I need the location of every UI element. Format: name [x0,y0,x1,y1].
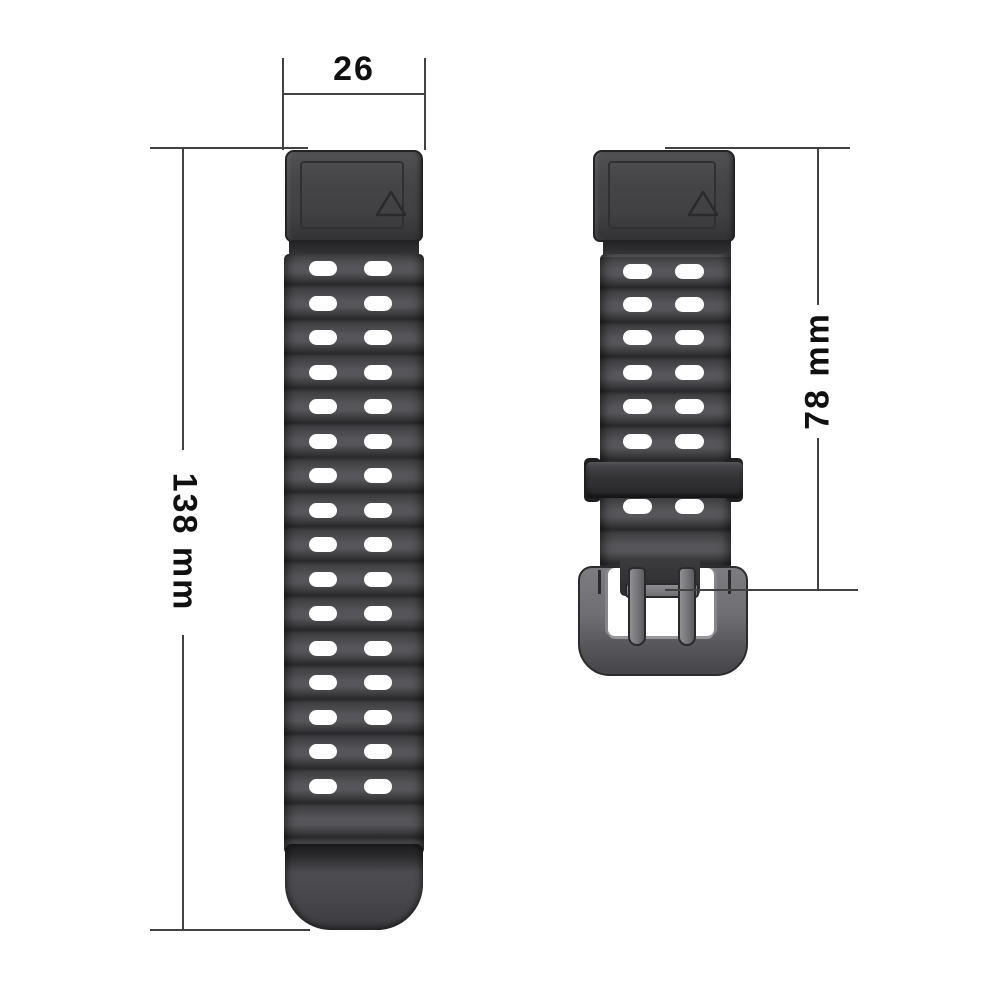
strap-hole [309,744,337,759]
long-strap-length-label: 138 mm [165,473,204,612]
strap-hole [364,399,392,414]
short-strap-dimension-line-lower [817,438,819,591]
short-strap-lug-end [593,150,735,242]
strap-hole [675,297,704,312]
strap-hole [309,434,337,449]
product-diagram: 26 138 mm 78 mm [0,0,1000,1000]
short-strap [574,150,754,685]
strap-hole [364,744,392,759]
strap-hole [675,330,704,345]
short-strap-body [600,254,731,576]
strap-hole [364,296,392,311]
short-strap-length-label: 78 mm [799,312,838,430]
strap-hole [623,399,652,414]
strap-hole [364,710,392,725]
short-strap-extension-line-top [665,147,850,149]
strap-hole [675,365,704,380]
strap-hole [364,537,392,552]
strap-hole [364,503,392,518]
strap-hole [364,365,392,380]
strap-hole [309,503,337,518]
strap-hole [623,499,652,514]
strap-hole [309,399,337,414]
strap-hole [364,468,392,483]
spring-bar-pin-left [598,570,601,594]
strap-hole [309,779,337,794]
strap-hole [364,779,392,794]
long-strap-body [284,254,424,854]
strap-hole [623,297,652,312]
long-strap-dimension-line-upper [182,147,184,450]
width-dimension-line [283,93,425,95]
strap-hole [623,330,652,345]
short-strap-extension-line-bottom [665,589,858,591]
strap-hole [309,365,337,380]
strap-hole [309,330,337,345]
strap-hole [364,572,392,587]
strap-hole [309,537,337,552]
strap-hole [364,261,392,276]
triangle-marker-icon [373,188,409,220]
strap-hole [364,641,392,656]
strap-hole [309,261,337,276]
buckle-prong-left [628,567,646,646]
buckle-prong-right [678,567,696,646]
strap-hole [309,606,337,621]
strap-hole [309,675,337,690]
strap-hole [309,468,337,483]
long-strap-extension-line-top [150,147,308,149]
strap-hole [309,710,337,725]
strap-hole [309,641,337,656]
strap-hole [623,264,652,279]
strap-hole [675,399,704,414]
width-dimension-label: 26 [283,50,425,89]
strap-hole [309,572,337,587]
strap-hole [364,606,392,621]
long-strap-dimension-line-lower [182,635,184,931]
strap-hole [675,264,704,279]
strap-hole [309,296,337,311]
width-extension-line-right [424,58,426,150]
width-extension-line-left [282,58,284,150]
strap-hole [675,499,704,514]
strap-hole [623,434,652,449]
long-strap-lug-end [285,150,423,242]
strap-hole [675,434,704,449]
strap-hole [364,675,392,690]
long-strap-tip [285,844,423,930]
triangle-marker-icon [685,188,721,220]
keeper-loop [586,462,743,498]
strap-hole [364,434,392,449]
strap-hole [623,365,652,380]
short-strap-dimension-line-upper [817,147,819,305]
long-strap-extension-line-bottom [150,929,310,931]
strap-hole [364,330,392,345]
long-strap [283,150,425,932]
